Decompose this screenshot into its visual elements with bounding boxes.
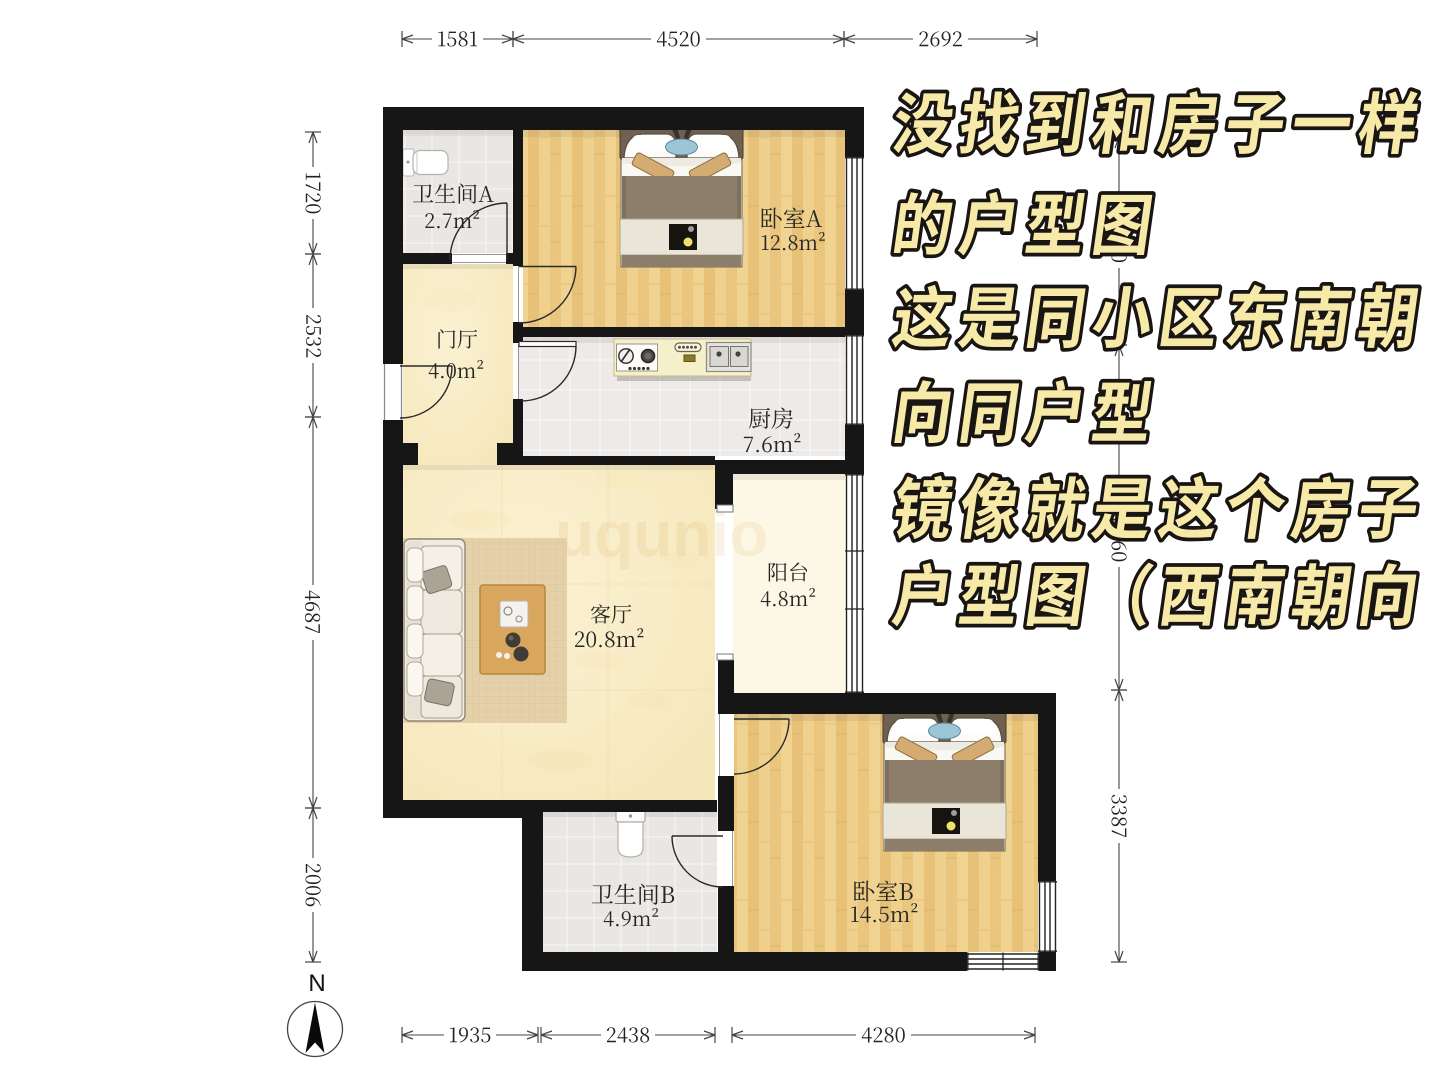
svg-text:uqunio: uqunio: [555, 498, 768, 570]
svg-text:N: N: [308, 970, 325, 997]
